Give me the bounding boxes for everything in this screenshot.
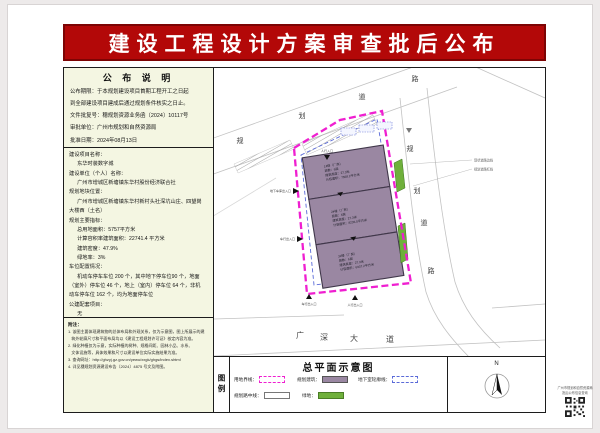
ped-entrance-label: 人行入口: [321, 148, 333, 153]
banner: 建设工程设计方案审查批后公布: [63, 24, 546, 61]
ped-entrance-bottom-label: 人行出入口: [347, 302, 362, 307]
legend-item-underground: 地下室轮廓线：: [358, 376, 418, 383]
announcement-title: 公 布 说 明: [70, 71, 207, 84]
project-line: 总用地面积：5757平方米: [69, 226, 208, 235]
notes-line: 3. 查询网址：http://ghzyj.gz.gov.cn/yewu/xxgk…: [68, 357, 209, 364]
legend-row: 图例 总平面示意图 用地界线： 规划建筑： 地下室轮廓线：: [214, 356, 545, 412]
announcement-line: 审批单位：广州市规划和自然资源局: [70, 122, 207, 134]
project-line: 大楼西（土名）: [69, 207, 208, 216]
left-column: 公 布 说 明 公布期限：于本规划建设项目首期工程开工之日起 到全部建设项目建成…: [64, 68, 214, 412]
project-line: 动车停车位 162 个，均为地面停车位: [69, 291, 208, 300]
announcement-panel: 公 布 说 明 公布期限：于本规划建设项目首期工程开工之日起 到全部建设项目建成…: [64, 68, 213, 148]
building-swatch-icon: [322, 376, 348, 383]
site-plan-canvas: 1#楼（厂房） 层数：6层 建筑高度：27.3米 计容面积：7568.2平方米 …: [214, 68, 545, 356]
garage-entrance-label: 地下车库出入口: [270, 188, 291, 193]
project-line: 机动车停车车位 200 个，其中地下停车位90 个，地面: [69, 273, 208, 282]
project-line: 建设单位（个人）名称：: [69, 170, 208, 179]
road-char: 广: [296, 330, 304, 340]
project-line: 规划地块位置：: [69, 188, 208, 197]
legend-item-label: 规划路中线：: [234, 393, 262, 399]
north-label: N: [448, 361, 545, 367]
legend-item-label: 地下室轮廓线：: [358, 377, 390, 383]
vehicle-entrance-label: 车行出入口: [280, 236, 295, 241]
project-line: 广州市增城区新塘镇东华村股份经济联合社: [69, 179, 208, 188]
notes-line: 2. 绿化种植仅为示意，实际种植的树种、规格间距、园林小品、水系、: [68, 343, 209, 350]
legend-item-centerline: 规划路中线：: [234, 392, 290, 399]
notes-line: 4. 详见穗规划资源建设布告〔2024〕4875 号文及附图。: [68, 364, 209, 371]
road-char: 划: [299, 111, 306, 120]
leader-line: [413, 169, 472, 186]
qr-caption: 批后公布信息查询: [550, 391, 600, 396]
entrance-arrow-icon: [306, 294, 312, 299]
legend-tab: 图例: [214, 357, 230, 412]
project-line: 广州市增城区新塘镇东华村新村头社深坑山庄、四望岗: [69, 198, 208, 207]
project-line: 东华时装数字城: [69, 160, 208, 169]
plan-title: 总平面示意图: [230, 359, 447, 374]
road-char: 规: [237, 136, 244, 145]
project-line: 规划主要指标：: [69, 217, 208, 226]
project-line: 建设项目名称：: [69, 151, 208, 160]
side-note: 现状道路边线: [474, 158, 494, 163]
content-frame: 公 布 说 明 公布期限：于本规划建设项目首期工程开工之日起 到全部建设项目建成…: [63, 67, 546, 413]
announcement-line: 批准日期：2024年08月13日: [70, 135, 207, 147]
building-group: 1#楼（厂房） 层数：6层 建筑高度：27.3米 计容面积：7568.2平方米 …: [302, 145, 404, 288]
legend-body: 总平面示意图 用地界线： 规划建筑： 地下室轮廓线： 规划路中线：: [230, 357, 448, 412]
legend-item-label: 规划建筑：: [297, 377, 320, 383]
right-column: 1#楼（厂房） 层数：6层 建筑高度：27.3米 计容面积：7568.2平方米 …: [214, 68, 545, 412]
project-line: （室外）停车位 46 个，地上（室内）停车位 64 个，非机: [69, 282, 208, 291]
legend-item-boundary: 用地界线：: [234, 376, 285, 383]
centerline-swatch-icon: [264, 392, 290, 399]
entrance-arrow-icon: [352, 295, 358, 300]
project-line: 无: [69, 310, 208, 318]
notes-panel: 附注： 1. 该图主要体现建筑物的总体布局和外观关系，仅为示意图，图上所展示的建…: [64, 318, 213, 412]
announcement-line: 公布期限：于本规划建设项目首期工程开工之日起: [70, 86, 207, 98]
project-line: 建筑密度：47.9%: [69, 245, 208, 254]
boundary-swatch-icon: [259, 376, 285, 383]
legend-item-building: 规划建筑：: [297, 376, 348, 383]
north-arrow-icon: [482, 370, 512, 400]
legend-item-label: 绿地：: [302, 393, 316, 399]
site-plan: 1#楼（厂房） 层数：6层 建筑高度：27.3米 计容面积：7568.2平方米 …: [214, 68, 545, 356]
underground-swatch-icon: [392, 376, 418, 383]
road-char: 深: [320, 333, 328, 342]
project-line: 绿地率：3%: [69, 254, 208, 263]
qr-code-icon: [565, 397, 585, 417]
document-sheet: 建设工程设计方案审查批后公布 公 布 说 明 公布期限：于本规划建设项目首期工程…: [7, 4, 593, 429]
road-char: 道: [421, 218, 428, 227]
notes-line: 筑外轮廓尺寸和平面布局均以《建设工程规划许可证》核定内容为准。: [68, 336, 209, 343]
legend-item-label: 用地界线：: [234, 377, 257, 383]
road-char: 道: [386, 334, 394, 344]
north-arrow-box: N: [448, 357, 545, 412]
road-char: 大: [350, 333, 358, 343]
road-char: 道: [359, 92, 366, 101]
road-char: 划: [414, 186, 421, 195]
vehicle-entrance-bottom-label: 车行出入口: [301, 301, 316, 306]
announcement-line: 到全部建设项目建成后通过规划条件核实之日止。: [70, 98, 207, 110]
announcement-line: 文件批复号：穗规划资源业务函〔2024〕10117号: [70, 110, 207, 122]
project-line: 计算容积率建筑面积：22741.4 平方米: [69, 235, 208, 244]
project-line: 车位配置情况：: [69, 263, 208, 272]
project-info-panel: 建设项目名称： 东华时装数字城 建设单位（个人）名称： 广州市增城区新塘镇东华村…: [64, 148, 213, 318]
road-direction-arrow-icon: [406, 128, 412, 133]
legend-tab-label: 图例: [216, 374, 227, 395]
project-line: 公建配套项目：: [69, 301, 208, 310]
side-note: 规划道路红线: [474, 167, 494, 172]
qr-block: 广州市规划和自然资源局 批后公布信息查询: [550, 386, 600, 422]
road-char: 路: [428, 266, 435, 275]
leader-line: [410, 160, 472, 164]
legend-item-green: 绿地：: [302, 392, 344, 399]
page-title: 建设工程设计方案审查批后公布: [109, 28, 501, 58]
road-char: 规: [407, 144, 414, 153]
green-swatch-icon: [318, 392, 344, 399]
notes-line: 文体设施等，具体效果和尺寸以建设单位实际实施结果为准。: [68, 350, 209, 357]
road-char: 路: [412, 74, 419, 83]
